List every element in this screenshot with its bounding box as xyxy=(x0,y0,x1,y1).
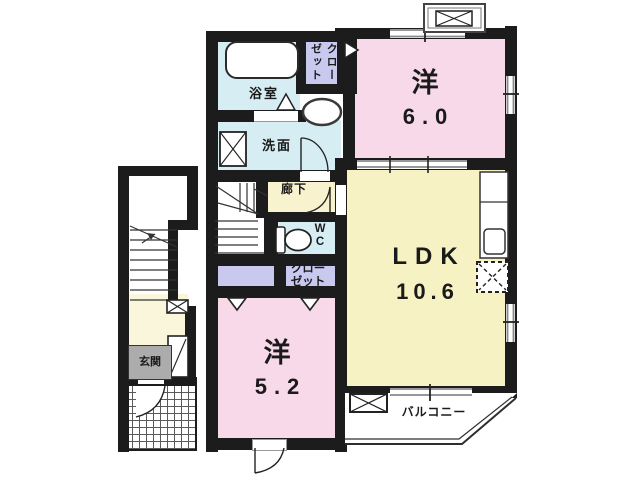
wall-segment xyxy=(118,166,129,452)
wc-label-line1: W xyxy=(315,223,326,236)
washroom-door-opening xyxy=(300,171,330,181)
entrance-genkan-box: 玄関 xyxy=(128,345,172,380)
wall-segment xyxy=(118,166,198,176)
lower-closet-label-line2: ゼット xyxy=(291,276,326,289)
bedroom-upper-size: 6.0 xyxy=(403,104,455,129)
wc-label-line2: C xyxy=(316,236,324,249)
corridor-door-opening xyxy=(336,185,346,215)
upper-closet-label-col2: ゼット xyxy=(309,39,322,85)
wall-segment xyxy=(335,28,517,39)
bedroom-lower-label: 洋 5.2 xyxy=(227,338,327,399)
ldk-size: 10.6 xyxy=(396,279,459,304)
wall-segment xyxy=(335,158,517,170)
lower-closet-label: クロー ゼット xyxy=(280,263,336,289)
wall-segment xyxy=(185,306,196,385)
room-bath-fill xyxy=(214,38,306,114)
bath-label: 浴室 xyxy=(235,87,293,102)
bedroom-lower-name: 洋 xyxy=(264,338,291,369)
wc-label: W C xyxy=(308,223,332,249)
bedroom-lower-door-arc xyxy=(255,448,284,473)
bedroom-upper-name: 洋 xyxy=(412,68,439,99)
wall-segment xyxy=(505,26,517,398)
balcony-label: バルコニー xyxy=(386,406,482,420)
wall-segment xyxy=(168,220,178,308)
wall-segment xyxy=(296,84,346,94)
upper-closet-label-col1: クロー xyxy=(325,39,338,85)
washroom-label: 洗面 xyxy=(248,139,306,154)
ldk-name: LDK xyxy=(392,243,465,271)
wall-segment xyxy=(206,31,218,452)
entrance-porch xyxy=(123,384,197,451)
bath-door-opening xyxy=(254,111,298,122)
upper-closet-label: クロー ゼット xyxy=(303,39,343,85)
corridor-label: 廊下 xyxy=(270,183,318,197)
bedroom-lower-door-opening xyxy=(252,439,287,451)
lower-closet-label-line1: クロー xyxy=(291,263,326,276)
floor-plan: 玄関 xyxy=(0,0,640,480)
wall-segment xyxy=(335,386,517,398)
bedroom-lower-size: 5.2 xyxy=(255,374,307,399)
entrance-label: 玄関 xyxy=(139,356,161,369)
ldk-label: LDK 10.6 xyxy=(365,243,485,304)
entrance-hall-fill xyxy=(126,294,188,348)
bedroom-upper-label: 洋 6.0 xyxy=(375,68,475,129)
